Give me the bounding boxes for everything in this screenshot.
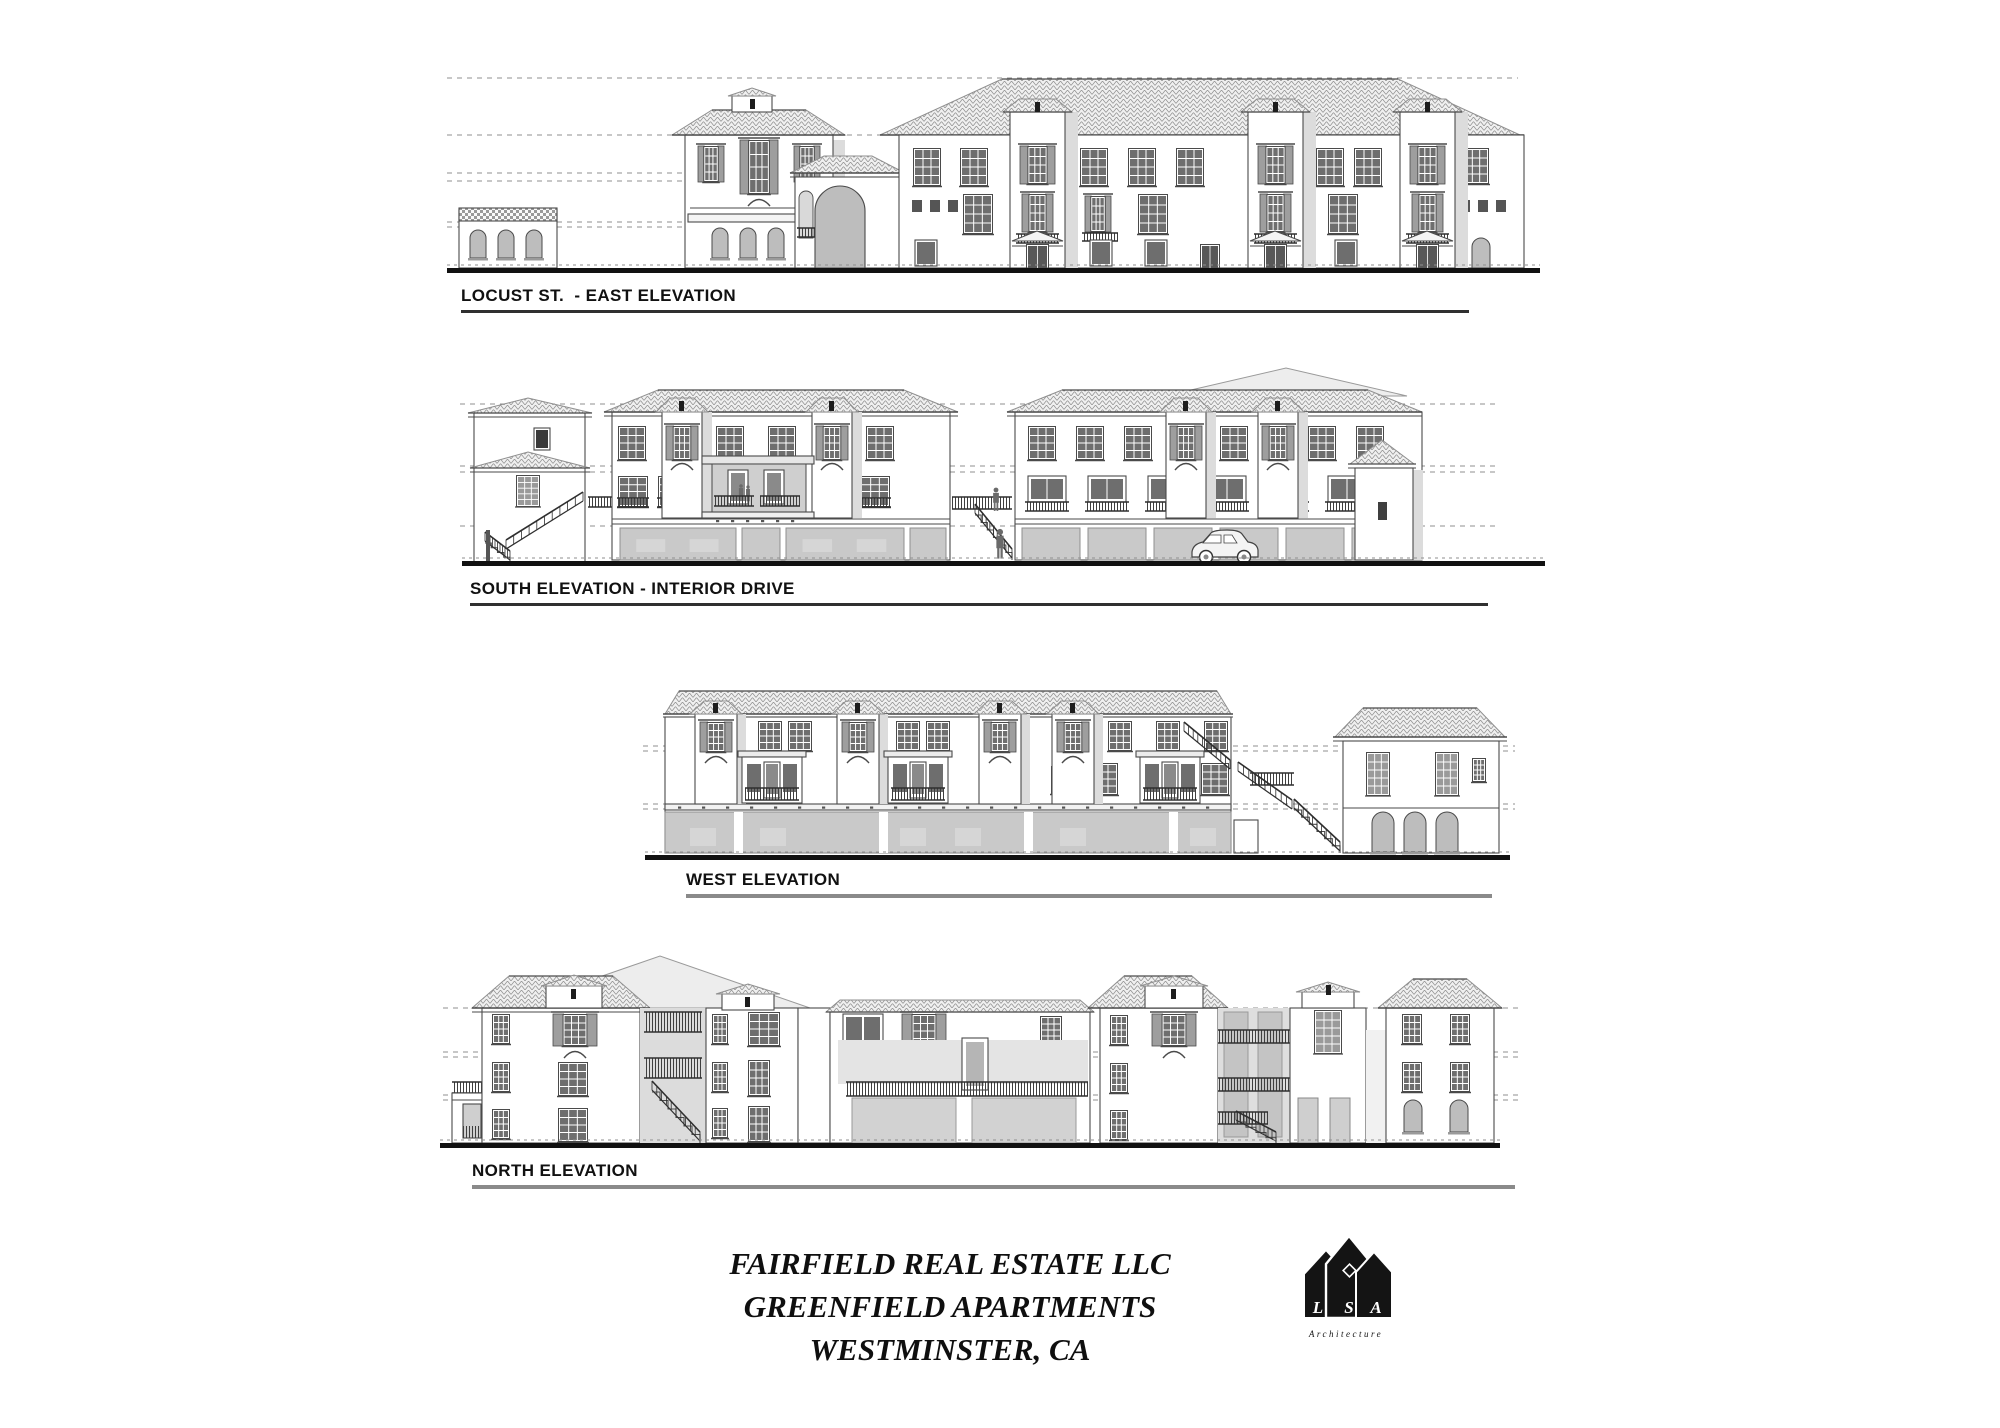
stair-gap bbox=[952, 488, 1012, 560]
corner-building bbox=[459, 208, 557, 268]
logo-letter-a: A bbox=[1369, 1298, 1381, 1317]
logo-letter-l: L bbox=[1312, 1298, 1323, 1317]
logo-letter-s: S bbox=[1344, 1298, 1353, 1317]
entry-pavilion bbox=[790, 156, 905, 268]
label-west-elevation: WEST ELEVATION bbox=[686, 870, 1492, 898]
center-balcony bbox=[702, 456, 814, 522]
dormer-bay bbox=[1393, 99, 1468, 268]
lsa-architecture-logo: L S A Architecture bbox=[1296, 1230, 1396, 1348]
title-line-city: WESTMINSTER, CA bbox=[700, 1329, 1200, 1372]
label-east-elevation: LOCUST ST. - EAST ELEVATION bbox=[461, 286, 1469, 313]
title-line-project: GREENFIELD APARTMENTS bbox=[700, 1286, 1200, 1329]
dormer-bay bbox=[832, 701, 888, 804]
label-east-text: LOCUST ST. - EAST ELEVATION bbox=[461, 286, 736, 305]
east-elevation-drawing bbox=[440, 58, 1545, 283]
balcony-unit bbox=[738, 751, 806, 803]
balcony-stair-strip bbox=[1218, 1008, 1290, 1143]
balcony-unit bbox=[1136, 751, 1204, 803]
dormer-bay bbox=[974, 701, 1030, 804]
entry-attachment bbox=[452, 1082, 482, 1143]
north-elevation-drawing bbox=[435, 940, 1525, 1153]
west-elevation-drawing bbox=[638, 678, 1523, 864]
garage-level bbox=[665, 812, 1231, 853]
label-south-text: SOUTH ELEVATION - INTERIOR DRIVE bbox=[470, 579, 795, 598]
south-elevation-drawing bbox=[455, 362, 1555, 574]
title-line-client: FAIRFIELD REAL ESTATE LLC bbox=[700, 1243, 1200, 1286]
left-tower bbox=[472, 975, 650, 1143]
label-south-elevation: SOUTH ELEVATION - INTERIOR DRIVE bbox=[470, 579, 1488, 606]
recess bbox=[1366, 1030, 1386, 1143]
center-building bbox=[826, 1000, 1094, 1143]
label-west-text: WEST ELEVATION bbox=[686, 870, 840, 889]
dormer-bay bbox=[1003, 99, 1078, 268]
label-north-elevation: NORTH ELEVATION bbox=[472, 1161, 1515, 1189]
right-tower bbox=[1333, 708, 1507, 855]
dormer-bay bbox=[1241, 99, 1316, 268]
stair-tower bbox=[468, 398, 612, 562]
dormer-bay bbox=[1160, 398, 1216, 518]
dormer-bay bbox=[1252, 398, 1308, 518]
dormer-bay bbox=[1047, 701, 1103, 804]
balcony-unit bbox=[884, 751, 952, 803]
right-tower-a bbox=[1088, 976, 1228, 1143]
logo-caption: Architecture bbox=[1296, 1329, 1396, 1339]
right-tower-c bbox=[1378, 979, 1502, 1143]
title-block: FAIRFIELD REAL ESTATE LLC GREENFIELD APA… bbox=[700, 1243, 1200, 1371]
label-north-text: NORTH ELEVATION bbox=[472, 1161, 638, 1180]
mid-bay bbox=[1290, 982, 1366, 1143]
lsa-logo-icon: L S A bbox=[1296, 1230, 1396, 1326]
drawing-sheet: LOCUST ST. - EAST ELEVATION SOUTH ELEVAT… bbox=[0, 0, 2000, 1428]
